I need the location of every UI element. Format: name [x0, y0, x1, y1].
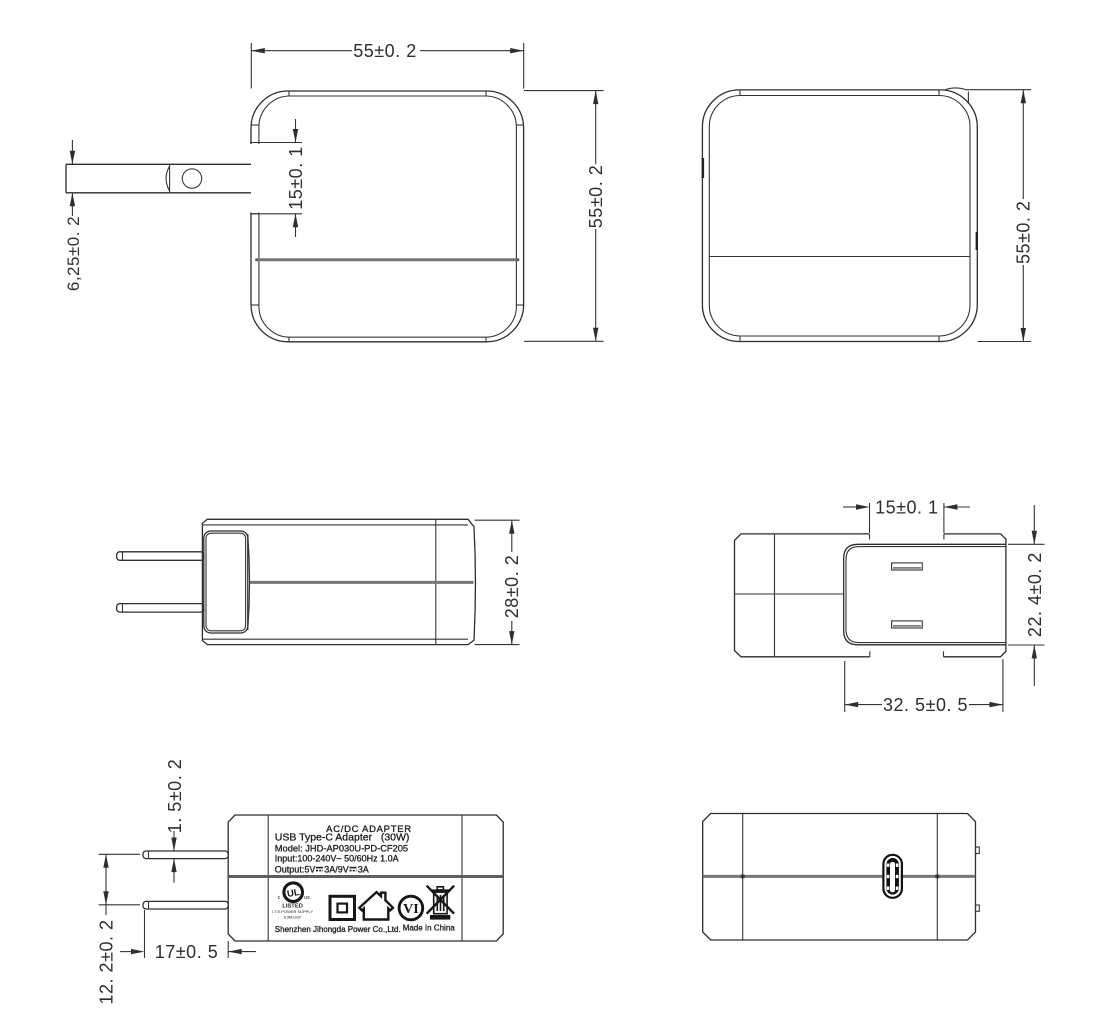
svg-text:15±0. 1: 15±0. 1: [286, 146, 306, 209]
svg-text:E3M1922: E3M1922: [284, 915, 302, 920]
svg-text:UL: UL: [286, 887, 301, 900]
svg-text:Made In China: Made In China: [403, 924, 456, 933]
svg-text:28±0. 2: 28±0. 2: [502, 555, 522, 618]
svg-text:12. 2±0. 2: 12. 2±0. 2: [97, 920, 117, 1005]
svg-text:3A: 3A: [358, 864, 369, 874]
svg-text:17±0. 5: 17±0. 5: [155, 942, 218, 962]
svg-text:55±0. 2: 55±0. 2: [353, 41, 416, 61]
svg-text:VI: VI: [403, 902, 419, 917]
svg-text:1. 5±0. 2: 1. 5±0. 2: [165, 759, 185, 833]
svg-text:us: us: [304, 895, 310, 901]
svg-text:USB Type-C Adapter (30W): USB Type-C Adapter (30W): [275, 832, 410, 844]
svg-text:6,25±0. 2: 6,25±0. 2: [64, 216, 83, 291]
svg-text:Shenzhen Jihongda Power Co.,Lt: Shenzhen Jihongda Power Co.,Ltd.: [275, 925, 401, 934]
svg-text:Model: JHD-AP030U-PD-CF205: Model: JHD-AP030U-PD-CF205: [275, 844, 408, 854]
svg-text:32. 5±0. 5: 32. 5±0. 5: [883, 695, 968, 715]
svg-text:c: c: [278, 895, 281, 901]
svg-text:55±0. 2: 55±0. 2: [1014, 201, 1034, 264]
svg-text:3A/9V: 3A/9V: [324, 864, 349, 874]
svg-text:15±0. 1: 15±0. 1: [875, 497, 938, 517]
svg-text:Input:100-240V~ 50/60Hz 1.0A: Input:100-240V~ 50/60Hz 1.0A: [275, 854, 399, 864]
svg-text:55±0. 2: 55±0. 2: [586, 165, 606, 228]
svg-text:I.T.E.POWER SUPPLY: I.T.E.POWER SUPPLY: [272, 909, 313, 914]
svg-text:Output:5V: Output:5V: [275, 864, 316, 874]
svg-text:22. 4±0. 2: 22. 4±0. 2: [1025, 552, 1045, 637]
